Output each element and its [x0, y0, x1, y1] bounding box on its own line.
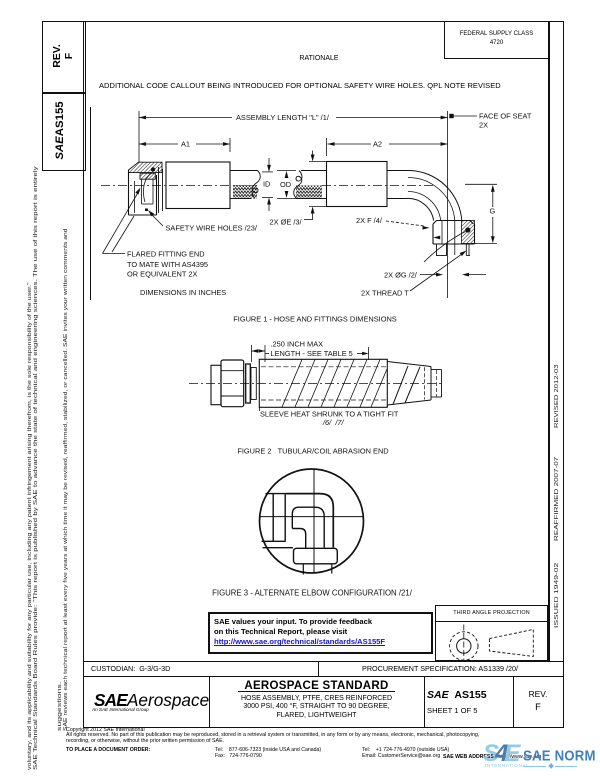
svg-text:TO MATE WITH AS4395: TO MATE WITH AS4395	[127, 260, 208, 269]
svg-text:G: G	[490, 207, 496, 216]
svg-text:A2: A2	[373, 140, 382, 149]
svg-text:DIMENSIONS IN INCHES: DIMENSIONS IN INCHES	[140, 288, 226, 297]
svg-text:2X: 2X	[479, 121, 488, 130]
svg-text:OR EQUIVALENT 2X: OR EQUIVALENT 2X	[127, 270, 197, 279]
svg-text:FIGURE 2 TUBULAR/COIL ABRASI: FIGURE 2 TUBULAR/COIL ABRASION END	[237, 447, 388, 456]
svg-text:/6/ /7/: /6/ /7/	[322, 418, 344, 427]
svg-text:ASSEMBLY LENGTH "L" /1/: ASSEMBLY LENGTH "L" /1/	[236, 113, 330, 122]
svg-text:FACE OF SEAT: FACE OF SEAT	[479, 112, 532, 121]
svg-text:SAFETY WIRE HOLES /23/: SAFETY WIRE HOLES /23/	[166, 224, 258, 233]
svg-text:FIGURE 1 - HOSE AND FITTINGS D: FIGURE 1 - HOSE AND FITTINGS DIMENSIONS	[233, 315, 397, 324]
svg-text:2X F /4/: 2X F /4/	[356, 216, 383, 225]
svg-text:2X ØG /2/: 2X ØG /2/	[384, 271, 418, 280]
svg-text:.250 INCH MAX: .250 INCH MAX	[271, 339, 324, 348]
svg-text:2X ØE /3/: 2X ØE /3/	[270, 218, 303, 227]
svg-text:A1: A1	[181, 140, 190, 149]
svg-text:OD: OD	[280, 180, 291, 189]
svg-text:FIGURE 3 - ALTERNATE ELBOW CON: FIGURE 3 - ALTERNATE ELBOW CONFIGURATION…	[212, 589, 413, 598]
svg-text:2X THREAD T: 2X THREAD T	[361, 289, 409, 298]
svg-text:FLARED FITTING END: FLARED FITTING END	[127, 250, 205, 259]
svg-text:LENGTH - SEE TABLE 5: LENGTH - SEE TABLE 5	[271, 349, 353, 358]
svg-text:ID: ID	[263, 180, 270, 189]
